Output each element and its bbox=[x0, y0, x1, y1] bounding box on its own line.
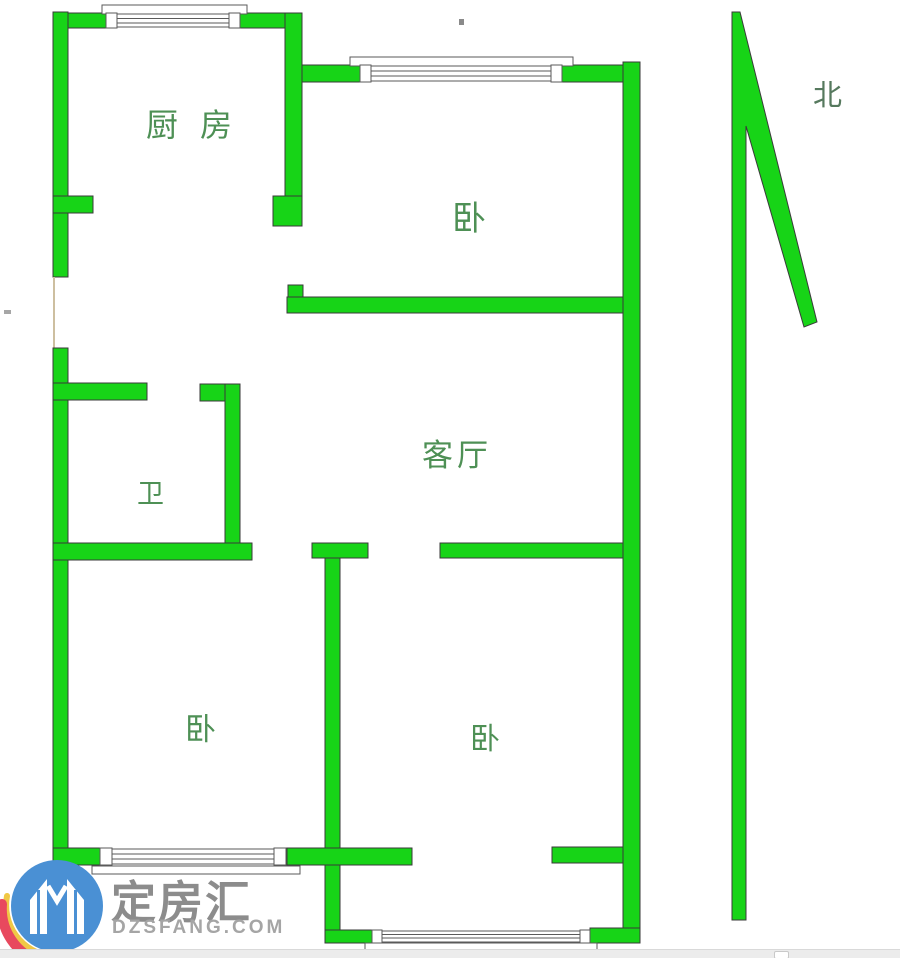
window bbox=[350, 57, 573, 82]
artifact-dot bbox=[4, 310, 11, 314]
window-cap bbox=[274, 848, 286, 865]
floor-plan-page: 厨房 卧 客厅 卫 卧 卧 北 定房汇 DZSFANG.COM bbox=[0, 0, 900, 958]
room-label-bathroom: 卫 bbox=[137, 472, 164, 511]
wall-segment bbox=[53, 348, 68, 865]
wall-segment bbox=[287, 297, 623, 313]
artifact-dot bbox=[459, 19, 464, 25]
wall-segment bbox=[312, 543, 368, 558]
wall-segment bbox=[590, 928, 640, 943]
wall-segment bbox=[53, 12, 68, 277]
north-arrow-icon bbox=[732, 12, 817, 920]
door-opening-line bbox=[53, 277, 55, 348]
window-cap bbox=[106, 13, 117, 28]
window-glass bbox=[382, 931, 580, 942]
wall-segment bbox=[53, 543, 252, 560]
wall-segment bbox=[225, 384, 240, 547]
wall-segment bbox=[623, 62, 640, 943]
window bbox=[365, 930, 597, 951]
watermark-brand-domain: DZSFANG.COM bbox=[112, 917, 285, 939]
window-cap bbox=[100, 848, 112, 865]
wall-segment bbox=[53, 196, 93, 213]
window-cap bbox=[372, 930, 382, 943]
wall-segment bbox=[552, 847, 623, 863]
room-label-living-room: 客厅 bbox=[422, 430, 492, 475]
window bbox=[102, 5, 247, 28]
wall-segment bbox=[440, 543, 623, 558]
window-glass bbox=[112, 849, 274, 864]
window-glass bbox=[371, 66, 552, 81]
window-cap bbox=[360, 65, 371, 82]
wall-segment bbox=[325, 558, 340, 943]
wall-segment bbox=[287, 848, 412, 865]
wall-segment bbox=[302, 65, 360, 82]
wall-segment bbox=[53, 383, 147, 400]
wall-segment bbox=[273, 196, 302, 226]
bottom-edge-notch bbox=[774, 951, 789, 958]
logo-circle bbox=[11, 860, 103, 952]
window-cap bbox=[229, 13, 240, 28]
floor-plan-drawing bbox=[0, 0, 900, 958]
window-glass bbox=[117, 14, 229, 27]
room-label-bedroom-bottom-right: 卧 bbox=[470, 714, 500, 758]
north-label: 北 bbox=[813, 72, 842, 114]
window-cap bbox=[580, 930, 590, 943]
brand-logo-icon bbox=[2, 860, 103, 958]
wall-segment bbox=[285, 13, 302, 203]
window-cap bbox=[551, 65, 562, 82]
wall-segment bbox=[325, 930, 372, 943]
window-sill bbox=[350, 57, 573, 66]
room-label-kitchen: 厨房 bbox=[146, 100, 254, 146]
room-label-bedroom-top-right: 卧 bbox=[452, 191, 486, 240]
bottom-edge-strip bbox=[0, 949, 900, 958]
room-label-bedroom-bottom-left: 卧 bbox=[185, 704, 216, 749]
window-sill bbox=[102, 5, 247, 14]
